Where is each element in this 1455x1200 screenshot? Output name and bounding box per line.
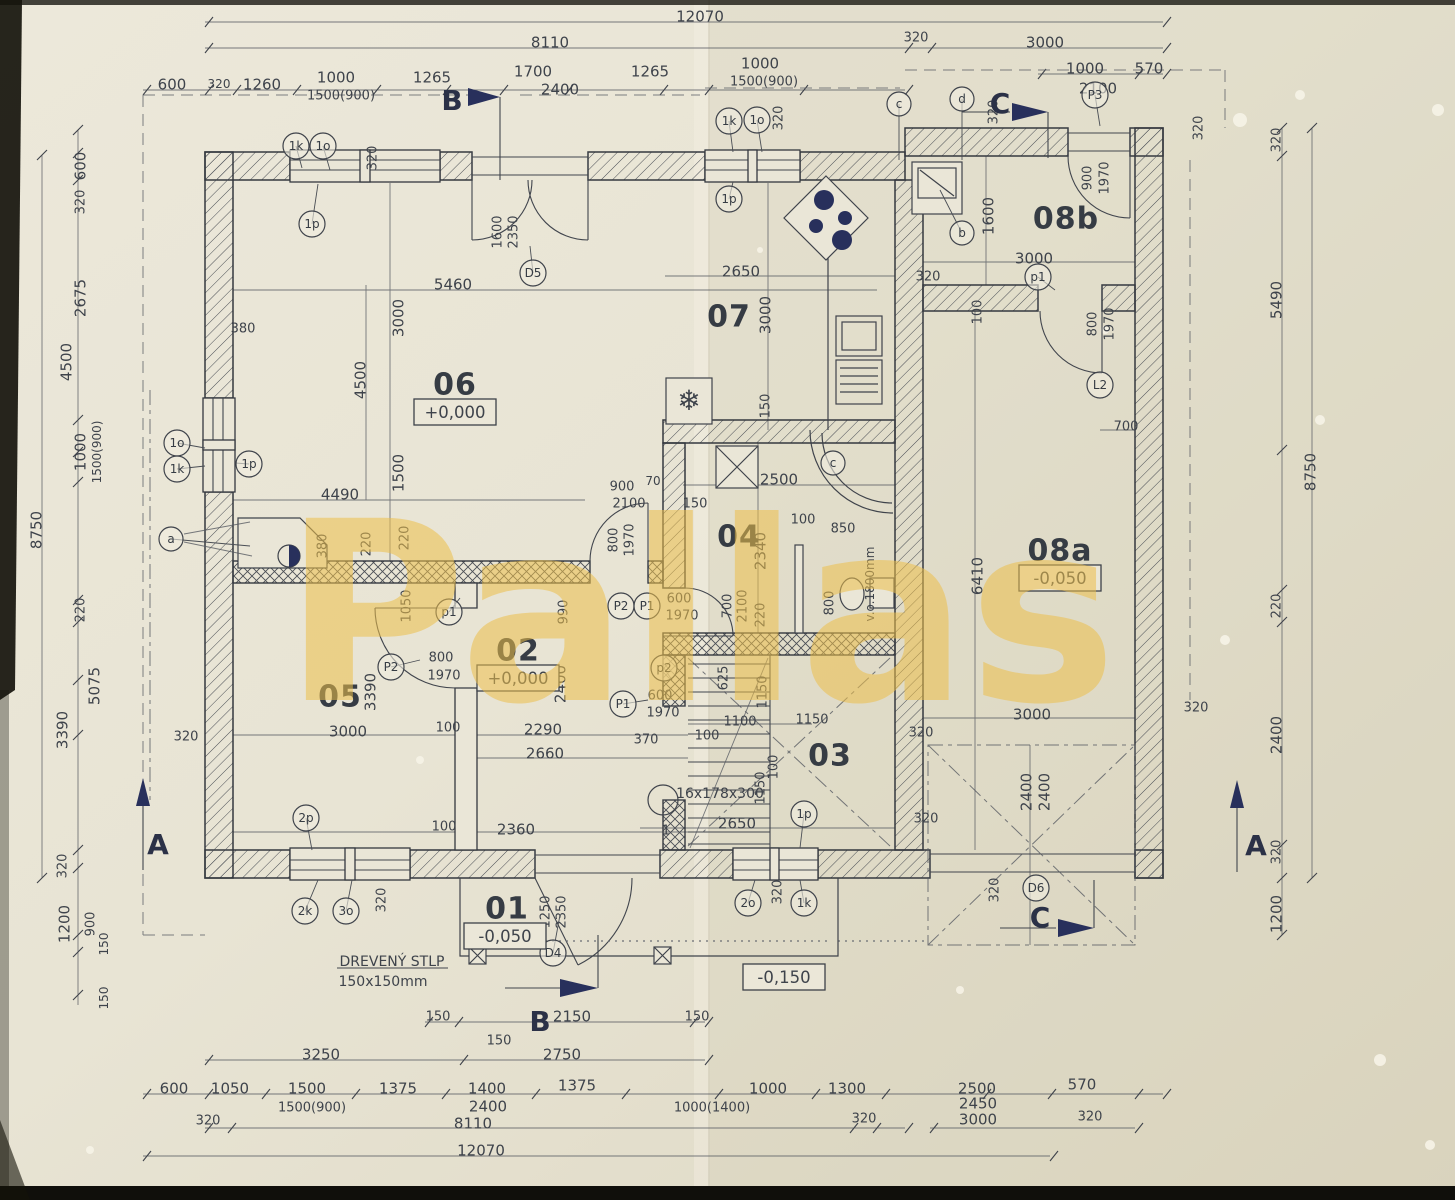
dim-label: 5075 — [85, 667, 103, 705]
dim-label: 320 — [74, 190, 89, 215]
dim-label: 320 — [196, 1114, 221, 1129]
circle-shape — [1425, 1140, 1435, 1150]
dim-label: 1700 — [514, 62, 552, 80]
circle-shape — [1432, 104, 1444, 116]
callout-L2: L2 — [1087, 372, 1113, 398]
window-bottom-left — [290, 848, 410, 880]
callout-label: 1p — [721, 192, 736, 206]
elevation-value: +0,000 — [424, 403, 485, 422]
dim-label: 700 — [1114, 420, 1139, 435]
dim-label: 600 — [160, 1079, 189, 1097]
dim-label: 3000 — [756, 296, 774, 334]
room-number-01: 01 — [485, 892, 529, 927]
dim-label: 320 — [1192, 116, 1207, 141]
dim-label: 220 — [1270, 594, 1285, 619]
dim-label: 4500 — [351, 361, 369, 399]
dim-label: 5460 — [434, 275, 472, 293]
callout-label: 2o — [741, 896, 756, 910]
dim-label: 320 — [1270, 128, 1285, 153]
dim-label: 320 — [174, 730, 199, 745]
dim-label: 2650 — [722, 262, 760, 280]
window-top-fold — [705, 150, 800, 182]
elevation-value: -0,050 — [478, 927, 531, 946]
dim-label: 1265 — [631, 62, 669, 80]
dim-label: 570 — [1135, 59, 1164, 77]
dim-label: 570 — [1068, 1075, 1097, 1093]
section-letter-A: A — [1245, 829, 1267, 862]
window-left — [203, 398, 235, 492]
wall-top — [588, 152, 705, 180]
callout-label: D4 — [545, 946, 562, 960]
callout-label: b — [958, 226, 966, 240]
circle-shape — [809, 219, 823, 233]
section-letter-C: C — [1030, 901, 1051, 934]
dim-label: 2750 — [543, 1045, 581, 1063]
photo-edge-top — [0, 0, 1455, 5]
dim-label: 320 — [366, 146, 381, 171]
elevation-value: -0,150 — [757, 968, 810, 987]
section-letter-B: B — [529, 1005, 550, 1038]
floor-plan-page: 1207081103203000100057021006003201260100… — [0, 0, 1455, 1200]
circle-shape — [1295, 90, 1305, 100]
circle-shape — [1374, 1054, 1386, 1066]
note-text: ❄ — [677, 384, 700, 417]
dim-label: 600 — [158, 75, 187, 93]
circle-shape — [1220, 635, 1230, 645]
dim-label: 8750 — [27, 511, 45, 549]
dim-label: 1500(900) — [730, 75, 798, 90]
wall-bottom — [410, 850, 535, 878]
callout-label: L2 — [1093, 378, 1107, 392]
dim-label: 2350 — [507, 215, 522, 248]
dim-label: 2400 — [541, 80, 579, 98]
wall-top — [440, 152, 472, 180]
dim-label: 150 — [426, 1010, 451, 1025]
wall-right — [1135, 128, 1163, 878]
dim-label: 1000 — [1066, 59, 1104, 77]
standalone-elevations: -0,150 — [743, 964, 825, 990]
dim-label: 150 — [487, 1034, 512, 1049]
dim-label: 320 — [208, 77, 231, 91]
callout-label: 1p — [304, 217, 319, 231]
dim-label: 320 — [1078, 1110, 1103, 1125]
dim-label: 320 — [914, 812, 939, 827]
dim-label: 2400 — [1267, 716, 1285, 754]
callout-label: a — [167, 532, 174, 546]
dim-label: 1260 — [243, 75, 281, 93]
dim-label: 2350 — [555, 895, 570, 928]
callout-label: P3 — [1088, 88, 1103, 102]
callout-label: 2k — [298, 904, 313, 918]
watermark: Pallas — [283, 468, 1117, 759]
room-number-07: 07 — [707, 300, 751, 335]
dim-label: 2400 — [469, 1097, 507, 1115]
callout-label: 1k — [722, 114, 737, 128]
dim-label: 100 — [971, 300, 986, 325]
circle-shape — [956, 986, 964, 994]
callout-label: 1k — [289, 139, 304, 153]
dim-label: 3000 — [959, 1110, 997, 1128]
dim-label: 320 — [904, 31, 929, 46]
wall-08b-08a — [1102, 285, 1135, 311]
dim-label: 320 — [772, 106, 787, 131]
wall-left — [205, 152, 233, 398]
dim-label: 1000 — [71, 433, 89, 471]
circle-shape — [814, 190, 834, 210]
circle-shape — [1315, 415, 1325, 425]
dim-label: 8110 — [454, 1114, 492, 1132]
dim-label: 1000 — [741, 54, 779, 72]
circle-shape — [1233, 113, 1247, 127]
dim-label: 150 — [97, 987, 111, 1010]
photo-edge-left-lower — [0, 690, 9, 1200]
wall-bottom — [660, 850, 733, 878]
callout-label: 1o — [750, 113, 765, 127]
note-text: 16x178x300 — [676, 786, 764, 802]
dim-label: 150 — [759, 394, 774, 419]
callout-label: 1k — [170, 462, 185, 476]
dim-label: 320 — [1184, 701, 1209, 716]
dim-label: 600 — [71, 152, 89, 181]
circle-shape — [832, 230, 852, 250]
dim-label: 320 — [771, 880, 786, 905]
dim-label: 4500 — [57, 343, 75, 381]
floor-plan-drawing: 1207081103203000100057021006003201260100… — [0, 0, 1455, 1200]
rect-shape — [345, 848, 355, 880]
circle-shape — [838, 211, 852, 225]
rect-shape — [770, 848, 779, 880]
dim-label: 2650 — [718, 814, 756, 832]
rect-shape — [748, 150, 757, 182]
dim-label: 1500(900) — [307, 89, 375, 104]
dim-label: 8750 — [1301, 453, 1319, 491]
callout-label: 1p — [241, 457, 256, 471]
wall-top-08b — [905, 128, 1068, 156]
dim-label: 2360 — [497, 820, 535, 838]
dim-label: 1600 — [491, 215, 506, 248]
dim-label: 320 — [988, 878, 1003, 903]
wall-left — [205, 492, 233, 878]
section-letter-B: B — [441, 84, 462, 117]
dim-label: 5490 — [1267, 281, 1285, 319]
dim-label: 1300 — [828, 1079, 866, 1097]
dim-label: 1500(900) — [278, 1101, 346, 1116]
callout-label: 1o — [316, 139, 331, 153]
dim-label: 1200 — [55, 905, 73, 943]
boiler-08b — [912, 162, 962, 214]
callout-label: D6 — [1028, 881, 1045, 895]
dim-label: 1200 — [1267, 895, 1285, 933]
dim-label: 3000 — [1026, 33, 1064, 51]
callout-label: 1o — [170, 436, 185, 450]
dim-label: 1050 — [211, 1079, 249, 1097]
callout-label: d — [958, 92, 966, 106]
callout-1p: 1p — [235, 451, 262, 477]
dim-label: 3390 — [53, 711, 71, 749]
dim-label: 3250 — [302, 1045, 340, 1063]
dim-label: 320 — [56, 854, 71, 879]
dim-label: 2400 — [1035, 773, 1053, 811]
rect-shape — [203, 440, 235, 450]
dim-label: 1400 — [468, 1079, 506, 1097]
note-text: DREVENÝ STLP — [340, 953, 445, 970]
dim-label: 900 — [1081, 166, 1096, 191]
dim-label: 1970 — [1098, 161, 1113, 194]
dim-label: 3000 — [389, 299, 407, 337]
dim-label: 320 — [1270, 840, 1285, 865]
dim-label: 1500 — [288, 1079, 326, 1097]
dim-label: 8110 — [531, 33, 569, 51]
wall-bottom — [1135, 850, 1163, 878]
dim-label: 150 — [97, 933, 111, 956]
dim-label: 1500(900) — [90, 421, 104, 484]
callout-label: 3o — [339, 904, 354, 918]
room-number-06: 06 — [433, 368, 477, 403]
dim-label: 220 — [74, 598, 89, 623]
dim-label: 1600 — [979, 197, 997, 235]
wall-bottom — [818, 850, 930, 878]
callout-label: 1k — [797, 896, 812, 910]
section-letter-A: A — [147, 828, 169, 861]
note-text: 150x150mm — [338, 974, 427, 990]
dim-label: 1375 — [379, 1079, 417, 1097]
wall-top — [800, 152, 905, 180]
dim-label: 800 — [1086, 312, 1101, 337]
dim-label: 320 — [852, 1112, 877, 1127]
callout-label: 1p — [796, 807, 811, 821]
dim-label: 320 — [916, 270, 941, 285]
dim-label: 1000 — [749, 1079, 787, 1097]
dim-label: 2400 — [1017, 773, 1035, 811]
circle-shape — [86, 1146, 94, 1154]
window-bottom-mid — [733, 848, 818, 880]
dim-label: 150 — [685, 1010, 710, 1025]
dim-label: 2150 — [553, 1007, 591, 1025]
photo-edge-bottom — [0, 1186, 1455, 1200]
section-letter-C: C — [990, 87, 1011, 120]
dim-label: 1970 — [1103, 307, 1118, 340]
room-number-08b: 08b — [1033, 202, 1099, 237]
callout-label: c — [896, 97, 903, 111]
dim-label: 100 — [432, 820, 457, 835]
dim-label: 1000(1400) — [674, 1101, 750, 1116]
callout-label: p1 — [1030, 270, 1045, 284]
dim-label: 12070 — [457, 1141, 505, 1159]
rect-shape — [912, 162, 962, 214]
circle-shape — [757, 247, 763, 253]
callout-D6: D6 — [1023, 875, 1049, 901]
dim-label: 380 — [231, 322, 256, 337]
dim-label: 12070 — [676, 7, 724, 25]
callout-label: 2p — [298, 811, 313, 825]
dim-label: 1375 — [558, 1076, 596, 1094]
callout-label: D5 — [525, 266, 542, 280]
note-text: 1 — [662, 824, 670, 839]
dim-label: 2675 — [71, 279, 89, 317]
dim-label: 320 — [375, 888, 390, 913]
dim-label: 1000 — [317, 68, 355, 86]
